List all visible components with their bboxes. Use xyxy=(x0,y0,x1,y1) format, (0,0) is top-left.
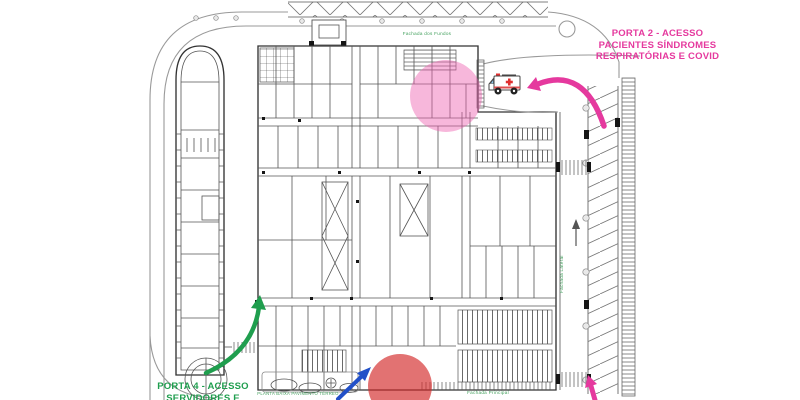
hospital-floor-plan: PORTA 2 - ACESSO PACIENTES SÍNDROMES RES… xyxy=(0,0,800,400)
ambulance-icon xyxy=(489,74,520,95)
top-parking-strip xyxy=(194,2,548,23)
hedge-strip xyxy=(622,78,635,396)
porta4-callout-label: PORTA 4 - ACESSO SERVIDORES E xyxy=(133,381,273,400)
porta2-callout-label: PORTA 2 - ACESSO PACIENTES SÍNDROMES RES… xyxy=(575,28,740,63)
crosswalk xyxy=(560,372,588,387)
ward-bays xyxy=(458,350,552,382)
main-entrance-highlight-circle xyxy=(368,354,432,400)
left-wing-building xyxy=(176,46,224,375)
porta4-arrow xyxy=(206,295,266,373)
side-facade-label: Fachada Lateral xyxy=(559,246,564,302)
side-parking-area xyxy=(556,78,635,396)
rear-entry-shelter xyxy=(309,20,346,46)
front-facade-label: Fachada Principal xyxy=(452,390,524,395)
crosswalk xyxy=(560,160,588,175)
plan-caption: PLANTA BAIXA PAVIMENTO TÉRREO xyxy=(256,391,340,396)
covid-entrance-highlight-circle xyxy=(410,60,482,132)
rear-facade-label: Fachada dos Fundos xyxy=(396,31,458,36)
roundabout-tree xyxy=(559,21,575,37)
ward-bays xyxy=(458,310,552,344)
